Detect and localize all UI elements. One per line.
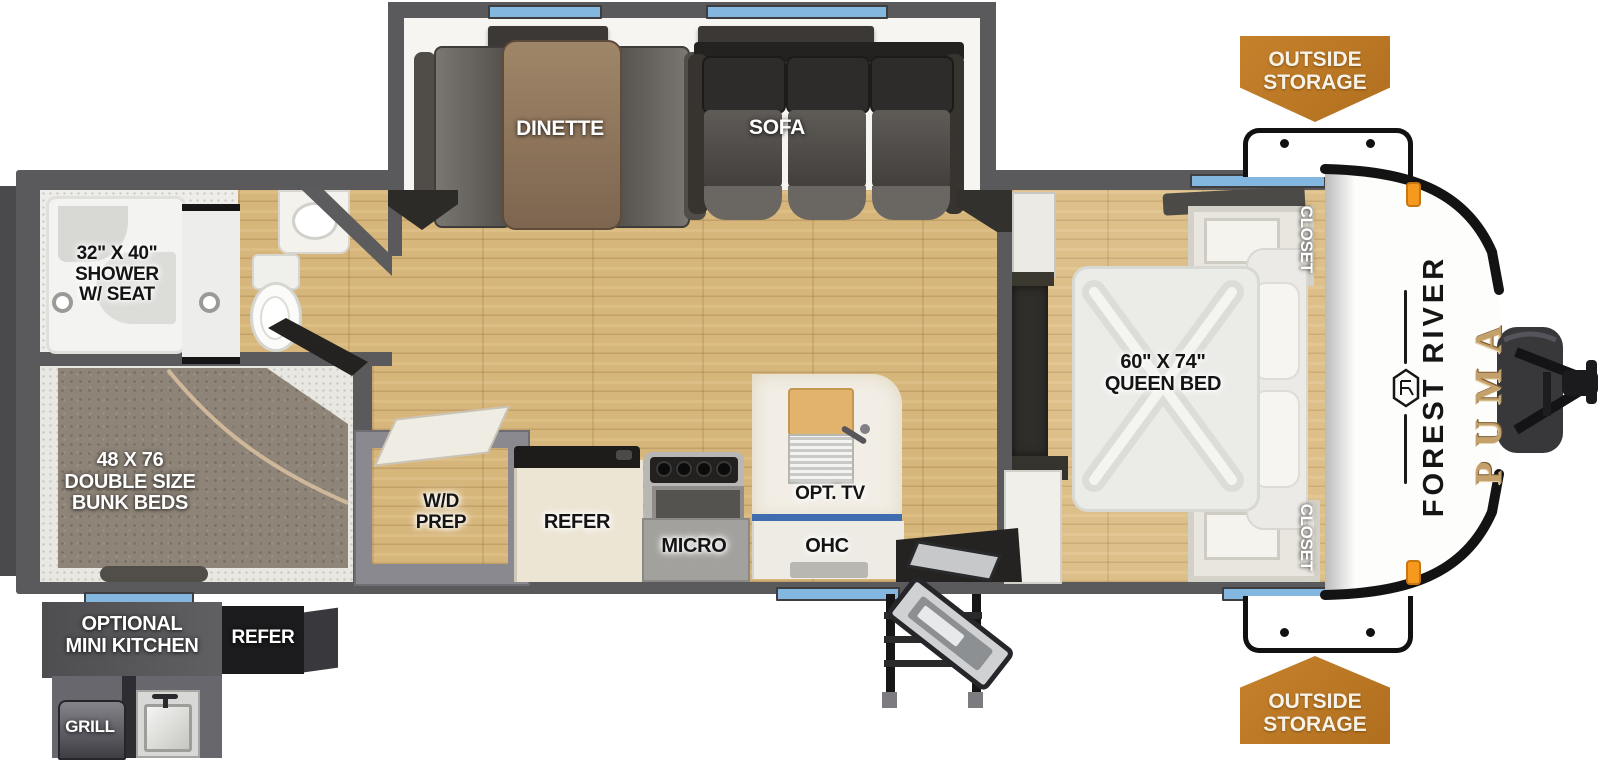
slideout-window-left bbox=[488, 5, 602, 19]
shower-door-knob bbox=[199, 292, 220, 313]
mini-kitchen-refer-side bbox=[304, 608, 338, 673]
range-burner-3 bbox=[696, 461, 712, 477]
sofa-back-cushion-2 bbox=[786, 56, 870, 114]
kitchen-window-bottom bbox=[776, 587, 900, 601]
sofa-front-bolster-3 bbox=[872, 186, 950, 220]
sink-faucet-base bbox=[860, 424, 870, 434]
bunk-bolster bbox=[100, 566, 208, 582]
bedroom-dresser-top-cabinet bbox=[1012, 192, 1056, 278]
exterior-sink-basin bbox=[144, 704, 192, 752]
sofa-back-cushion-3 bbox=[870, 56, 954, 114]
wd-prep-label: W/D PREP bbox=[398, 492, 484, 533]
sofa-front-bolster-1 bbox=[704, 186, 782, 220]
entry-steps bbox=[882, 578, 1012, 708]
sink-drainboard bbox=[788, 434, 854, 484]
storage-latch-dot bbox=[1366, 139, 1375, 148]
badge-text: OUTSIDE STORAGE bbox=[1240, 690, 1390, 736]
exterior-sink-faucet-stem bbox=[163, 694, 168, 708]
marker-light-bottom bbox=[1407, 561, 1420, 584]
brand-forest-river: FOREST RIVER bbox=[1418, 221, 1448, 551]
forest-river-accent-line-bottom bbox=[1404, 414, 1407, 484]
closet-bottom-label: CLOSET bbox=[1297, 499, 1315, 575]
floorplan-canvas: FOREST RIVER PUMA OUTSIDE STORAGE OUTSID… bbox=[0, 0, 1600, 761]
queen-bed-label: 60" X 74" QUEEN BED bbox=[1088, 352, 1238, 395]
dinette-bench-left bbox=[434, 46, 512, 228]
sofa-front-bolster-2 bbox=[788, 186, 866, 220]
cap-shade bbox=[1325, 172, 1355, 592]
opt-tv-label: OPT. TV bbox=[778, 484, 882, 505]
range-burner-2 bbox=[676, 461, 692, 477]
closet-top-label: CLOSET bbox=[1297, 201, 1315, 277]
exterior-refer-label: REFER bbox=[222, 628, 304, 649]
forest-river-accent-line-top bbox=[1404, 290, 1407, 364]
refer-handle bbox=[616, 450, 632, 460]
bedroom-dresser-crown bbox=[1012, 272, 1054, 286]
sofa-back-cushion-1 bbox=[702, 56, 786, 114]
dinette-armrest-left bbox=[414, 52, 436, 220]
grill-label: GRILL bbox=[57, 718, 123, 736]
dinette-bench-right bbox=[610, 46, 690, 228]
dinette-label: DINETTE bbox=[505, 118, 615, 141]
bedroom-tv-recess bbox=[1012, 286, 1048, 456]
bedroom-pocket-door bbox=[1004, 470, 1062, 584]
brand-puma: PUMA bbox=[1467, 308, 1507, 488]
counter-edge-trim bbox=[752, 514, 902, 521]
micro-label: MICRO bbox=[644, 536, 744, 558]
refer-label: REFER bbox=[522, 512, 632, 534]
bath-living-wall-stub bbox=[388, 190, 402, 256]
ohc-shelf bbox=[790, 562, 868, 578]
sofa-seat-3 bbox=[872, 110, 950, 188]
outside-storage-badge-bottom: OUTSIDE STORAGE bbox=[1240, 656, 1390, 744]
shower-glass-door bbox=[182, 204, 240, 364]
sofa-label: SOFA bbox=[722, 117, 832, 140]
mini-kitchen-label: OPTIONAL MINI KITCHEN bbox=[50, 614, 214, 657]
coupler-latch bbox=[1586, 360, 1597, 404]
forest-river-logo-icon bbox=[1392, 368, 1420, 408]
ohc-label: OHC bbox=[782, 536, 872, 558]
storage-latch-dot bbox=[1366, 628, 1375, 637]
range-burner-4 bbox=[716, 461, 732, 477]
storage-latch-dot bbox=[1280, 628, 1289, 637]
bunk-beds-label: 48 X 76 DOUBLE SIZE BUNK BEDS bbox=[56, 450, 204, 515]
bath-sink bbox=[292, 202, 338, 240]
outside-storage-badge-top: OUTSIDE STORAGE bbox=[1240, 36, 1390, 122]
rear-bumper bbox=[0, 186, 17, 576]
shower-label: 32" X 40" SHOWER W/ SEAT bbox=[48, 244, 186, 306]
slideout-window-right bbox=[706, 5, 888, 19]
range-burner-1 bbox=[656, 461, 672, 477]
marker-light-top bbox=[1407, 183, 1420, 206]
toilet-seat bbox=[260, 296, 290, 340]
storage-latch-dot bbox=[1280, 139, 1289, 148]
badge-text: OUTSIDE STORAGE bbox=[1240, 48, 1390, 94]
